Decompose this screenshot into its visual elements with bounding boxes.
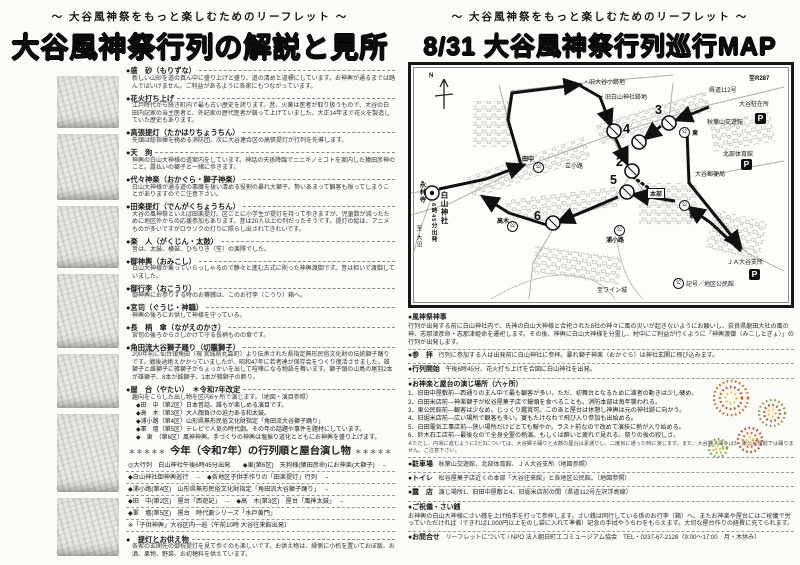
item-heading-text: ●花火打ち上げ [126,94,174,103]
dashed-rule [199,70,395,71]
dashed-rule [192,539,395,540]
map-number-2: 2 [616,155,623,169]
section-kaishi: ●行列開始 午後6時45分、花火打ち上げを合図に白山神社を出発。 [408,364,794,378]
map-label-departure: 6時45分出発 [429,203,438,243]
community-center-icon: 公 [614,225,625,236]
order-line: ◆田 中(第2区) 屋台「西遊記」 → ◆高 木(第3区) 屋台「風神太鼓」 → [126,496,395,508]
right-page-title: 8/31 大谷風神祭行列巡行MAP [400,27,800,63]
map-notes-sections: ●風神祭神事 行列が出発する前に白山神社内で、氏神の白山大神様と合祀された8社の… [408,312,794,545]
dashed-rule [206,307,395,308]
item-heading: ●楽 人（がくじん・太鼓） [126,237,395,246]
section-heading: ●露 店 [408,489,433,496]
dashed-rule [199,261,395,262]
community-center-icon: 公 [507,221,518,232]
order-line: ◎大行列 白山神社午後6時45分出発 ◆東(第6区) 天狗様(猿田彦命)にお神楽… [126,460,395,472]
dashed-rule [243,132,395,133]
section-roten: ●露 店 演じ場所1．旧田中屋敷と4．旧堀米店前の間（県道112号左沢浮島線） [408,487,794,501]
place-item: 3．東公民館前---観客は少なめ。じっくり鑑賞可。このあと屋台は休憩し神輿は元の… [408,407,794,415]
order-title-row: ＊＊＊＊＊ 今年（令和7年）の行列順と屋台演し物 ＊＊＊＊＊ [126,446,395,459]
dashed-rule [221,241,395,242]
place-item: 5．白田電気工事店前---狭い場所だけどとても賑やか。ラスト前なので改めて演技に… [408,424,794,432]
map-label-hakusan: 白山神社 [439,191,450,225]
section-heading: ●トイレ [408,475,433,482]
legend-community-center-icon: 公 [673,278,684,289]
dashed-rule [243,179,395,180]
place-item: 4．旧堀米店前---広い場所で観客も多い。宴もたけなわで飛び入り参加も出始める。 [408,415,794,423]
dashed-rule [228,327,395,328]
section-body: リーフレットについて / NPO 法人朝日町エコミュージアム協会 TEL・023… [445,534,760,541]
right-tagline: ～ 大谷風神祭をもっと楽しむためのリーフレット ～ [400,0,800,24]
route-map: N ・旧大谷小跡地 ・旧白山神社跡地 至R287 県道112号 大谷駐在所 秋葉… [408,62,794,308]
item-heading: ● 提灯とお供え物 [126,535,395,544]
north-label: N [429,73,433,79]
community-center-icon: 公 [679,127,690,138]
map-label-police: 大谷駐在所 [739,99,769,108]
left-tagline: ～ 大谷風神祭をもっと楽しむためのリーフレット ～ [0,0,400,24]
item-body: 宮司の後ろからさしかけて守る長柄ものの傘です。 [132,333,395,341]
item-heading-text: ●代々神楽（おかぐら・獅子神楽） [126,175,240,184]
section-heading: ●行列開始 [408,366,440,373]
item-heading: ●宮司（ぐうじ・神職） [126,303,395,312]
yatai-line: ◆高 木（第3区）大人顔負けの迫力ある和太鼓。 [136,411,395,419]
section-body: お神輿の白山大神様にさい銭を上げ拍手を打って参拝します。さい銭は同行している係の… [408,513,794,529]
section-body: 午後6時45分、花火打ち上げを合図に白山神社を出発。 [445,366,595,373]
dashed-rule [199,288,395,289]
section-heading: ●ご祝儀・さい銭 [408,504,794,513]
map-label-gym: 北部体育館 [723,149,753,158]
item-body: 昔は、太鼓、横笛、ひちりき（笙）の楽隊でした。 [132,247,395,255]
section-body: 演じ場所1．旧田中屋敷と4．旧堀米店前の間（県道112号左沢浮島線） [439,489,632,496]
yatai-line: ◆田 中（第2区）日本昔話、誰もが楽しめる演目です。 [136,403,395,411]
section-places: ●お神楽と屋台の演じ場所（六ヶ所） 1．旧田中屋敷前---西通りのまん中で最も観… [408,379,794,459]
map-label-gundan: 軍壇 [689,211,701,220]
right-page: ～ 大谷風神祭をもっと楽しむためのリーフレット ～ 8/31 大谷風神祭行列巡行… [400,0,800,565]
item-heading-text: ● 提灯とお供え物 [126,535,189,544]
item-heading-text: ●天 狗 [126,148,152,157]
map-label-old-shrine: ・旧白山神社跡地 [599,92,647,101]
dashed-rule [243,206,395,207]
section-contact: ●お問合せ リーフレットについて / NPO 法人朝日町エコミュージアム協会 T… [408,532,794,545]
item-heading-text: ●御神輿（おみこし） [126,257,196,266]
procession-order-section: ＊＊＊＊＊ 今年（令和7年）の行列順と屋台演し物 ＊＊＊＊＊ ◎大行列 白山神社… [126,446,395,532]
map-number-1: 1 [603,109,610,123]
item-body: 大谷の風神祭といえば田楽提灯。区ごとに小学生が提灯を持って歩きますが、児童数が減… [132,212,395,235]
order-line: ◆白山神社御神輿巡行 → ◆各地区子供手作りの「田楽提灯」行列 → [126,472,395,484]
map-label-urakoji: 浦小路 [606,235,624,244]
map-label-tanaka: 田中 [522,154,534,163]
section-body: 行列が出発する前に白山神社内で、氏神の白山大神様と合祀された8社の神々に風の災い… [408,323,794,346]
section-shinji: ●風神祭神事 行列が出発する前に白山神社内で、氏神の白山大神様と合祀された8社の… [408,312,794,350]
section-heading: ●駐車場 [408,461,433,468]
order-line: ◆軍 壇(第5区) 屋台 時代劇シリーズ「水戸黄門」 [126,508,395,520]
yatai-line: ◆浦小路（第4区）山形県無形民俗文化財指定「角田流大谷獅子踊り」 [136,419,395,427]
left-page: ～ 大谷風神祭をもっと楽しむためのリーフレット ～ 大谷風神祭行列の解説と見所 … [0,0,400,565]
map-number-6: 6 [534,209,541,223]
item-body: 趣向をこらした出し物を区内6ヶ所で演じます。（地図・演目参照） [132,395,395,403]
section-heading: ●お神楽と屋台の演じ場所（六ヶ所） [408,381,794,390]
dashed-rule [243,347,395,348]
item-body: 御神輿にお参りする時のお賽銭は、このお行李（こうり）箱へ。 [132,293,395,301]
procession-sketch [57,206,119,268]
item-heading-text: ●長 柄 傘（ながえのかさ） [126,323,225,332]
item-body: 先頭は総指揮を務める消防団、次に大谷連合区の高張提灯が行列を先導します。 [132,138,395,146]
item-heading-text: ●屋 台（やたい） ＊令和7年改定 [126,385,240,394]
section-heading: ●お問合せ [408,534,440,541]
community-center-icon: 公 [533,162,544,173]
order-title: 今年（令和7年）の行列順と屋台演し物 [170,446,351,459]
map-label-route112: 県道112号 [709,85,737,94]
map-number-5: 5 [610,173,617,187]
left-page-title: 大谷風神祭行列の解説と見所 [0,26,400,66]
item-heading: ●御行李（おこうり） [126,284,395,293]
order-line: ◆浦小路(第4区) 山形県無形民俗文化財指定「角田流大谷獅子踊り」 → [126,484,395,496]
parking-icon: P [755,113,766,124]
section-shugi: ●ご祝儀・さい銭 お神輿の白山大神様にさい銭を上げ拍手を打って参拝します。さい銭… [408,502,794,532]
star-ornament: ＊＊＊＊＊ [129,449,167,457]
north-arrow-icon [435,79,453,109]
parking-icon: P [741,159,752,170]
star-ornament: ＊＊＊＊＊ [355,449,393,457]
place-item: 1．旧田中屋敷前---西通りのまん中で最も観客が多い。ただ、初舞台となるために演… [408,390,794,398]
map-label-tachishoji: 立小路 [565,161,583,170]
explanation-column: ●盛 砂（もりずな） 新しい山砂を道の真ん中に盛り上げと盛り、道の清めと道標にし… [119,64,395,562]
section-body: 秋葉山交遊館、北部体育館、ＪＡ大谷支所（地図参照） [439,461,591,468]
section-heading: ●参 拝 [408,352,433,359]
map-label-akiba: 秋葉山交遊館 [707,117,743,126]
procession-sketch [57,274,119,348]
item-heading: ●代々神楽（おかぐら・獅子神楽） [126,175,395,184]
item-body: 神輿の後ろにお供して神様を守っている。 [132,313,395,321]
section-parking: ●駐車場 秋葉山交遊館、北部体育館、ＪＡ大谷支所（地図参照） [408,458,794,472]
left-columns: ●盛 砂（もりずな） 新しい山砂を道の真ん中に盛り上げと盛り、道の清めと道標にし… [57,64,395,562]
map-label-higashi: 東 [692,128,698,137]
dashed-rule [155,152,395,153]
legend-text: 記号／地区公民館 [686,279,734,288]
community-center-icon: 公 [679,200,690,211]
map-label-eirinji: 永林寺 [416,181,426,204]
parking-icon: P [749,269,760,280]
map-number-3: 3 [655,103,662,117]
dashed-rule [243,389,395,390]
item-body: 白山大神様が通る道の悪魔を祓い清める役割の暴れ大獅子。勢いあまって観客も祓ってし… [132,185,395,200]
item-heading-text: ●高張提灯（たかはりちょうちん） [126,128,240,137]
procession-illustration-strip [57,64,119,562]
right-content: N ・旧大谷小跡地 ・旧白山神社跡地 至R287 県道112号 大谷駐在所 秋葉… [408,62,794,563]
map-label-ja: ＪＡ大谷支所 [727,257,763,266]
order-line: ※「子供神輿」大谷区内一巡（午前10時 大谷往来館出発） [126,520,395,532]
item-heading: ●角田流大谷獅子踊り（切籠獅子） [126,343,395,352]
item-body: 200年前に仙台領角田（現 宮城県丸森町）より伝承された県指定無形民俗文化財の伝… [132,352,395,382]
item-heading-text: ●楽 人（がくじん・太鼓） [126,237,218,246]
item-heading: ●屋 台（やたい） ＊令和7年改定 [126,385,395,394]
procession-sketch [57,76,119,128]
item-body: 神輿の白山大神様の道案内をしています。神話の天孫降臨でニニギノミコトを案内した猿… [132,158,395,173]
map-label-to-onuma: 至 大沼 [414,225,423,248]
item-body: 江戸時代から続き町内で最も古い歴史を誇ります。昔、火薬は医者が取り扱うもので、大… [132,103,395,126]
map-label-to-r287: 至R287 [749,73,769,82]
place-item: 2．白田米店前---神楽獅子が松谷屋菓子店で饅頭を食べることも。消防本部は毎年襲… [408,399,794,407]
procession-sketch [57,134,119,200]
item-body: 白山大神様が乗っていらっしゃるので静々と進む古式に則った神輿渡御です。昔は担いで… [132,266,395,281]
dashed-rule [177,98,395,99]
yatai-line: ◆ 東 （第6区）風神神輿。手づくりの神輿は塩振り道化とともにお神輿を盛り上げま… [136,435,395,443]
section-sanpai: ●参 拝 行列に参加する人は出発前に白山神社に参拝。暴れ獅子神楽（おかぐら）は神… [408,350,794,364]
procession-sketch [57,498,119,556]
item-heading: ●盛 砂（もりずな） [126,66,395,75]
performance-places-list: 1．旧田中屋敷前---西通りのまん中で最も観客が多い。ただ、初舞台となるために演… [408,390,794,440]
item-heading: ●御神輿（おみこし） [126,257,395,266]
section-body: 松谷屋菓子店近くの本部「大谷往来館」と各地区公民館。（地図参照） [439,475,631,482]
places-note: ※ただし、円滑に進むように2と3については、大谷獅子踊りと太鼓の屋台は素通りし、… [408,441,794,455]
section-toilet: ●トイレ 松谷屋菓子店近くの本部「大谷往来館」と各地区公民館。（地図参照） [408,473,794,487]
place-item: 6．鈴木石工店前---最後なので全身全霊の熱演。もしくは酔いと疲れで見れる。祭り… [408,432,794,440]
item-heading: ●田楽提灯（でんがくちょうちん） [126,202,395,211]
item-heading: ●高張提灯（たかはりちょうちん） [126,128,395,137]
section-body: 行列に参加する人は出発前に白山神社に参拝。暴れ獅子神楽（おかぐら）は神社玄関に飛… [439,352,719,359]
item-heading-text: ●角田流大谷獅子踊り（切籠獅子） [126,343,240,352]
item-heading-text: ●盛 砂（もりずな） [126,66,196,75]
item-heading-text: ●田楽提灯（でんがくちょうちん） [126,202,240,211]
item-body: 新しい山砂を道の真ん中に盛り上げと盛り、道の清めと道標にしています。お神輿が通る… [132,76,395,91]
section-heading: ●風神祭神事 [408,314,794,323]
item-heading-text: ●宮司（ぐうじ・神職） [126,303,203,312]
procession-sketch [57,354,119,408]
item-heading: ●長 柄 傘（ながえのかさ） [126,323,395,332]
item-heading: ●天 狗 [126,148,395,157]
map-label-honbu: 本部 [647,188,665,199]
shrine-mark-icon [425,186,439,200]
map-label-post: 大谷郵便局 [695,169,725,178]
map-number-4: 4 [623,122,630,136]
map-label-old-school: ・旧大谷小跡地 [583,77,625,86]
map-label-wine: 至ワイン城 [597,285,627,294]
leaflet-sheet: ～ 大谷風神祭をもっと楽しむためのリーフレット ～ 大谷風神祭行列の解説と見所 … [0,0,800,565]
item-heading-text: ●御行李（おこうり） [126,284,196,293]
procession-sketch [57,414,119,492]
item-heading: ●花火打ち上げ [126,94,395,103]
item-body: 各家の玄関先の御祝提灯を見て歩くのも楽しいです。お供え物は、縁側に小机を置いてお… [132,544,395,559]
yatai-line: ◆軍 壇（第5区）テレビで人気の時代劇。その年の話題や事件を題材にしています。 [136,427,395,435]
